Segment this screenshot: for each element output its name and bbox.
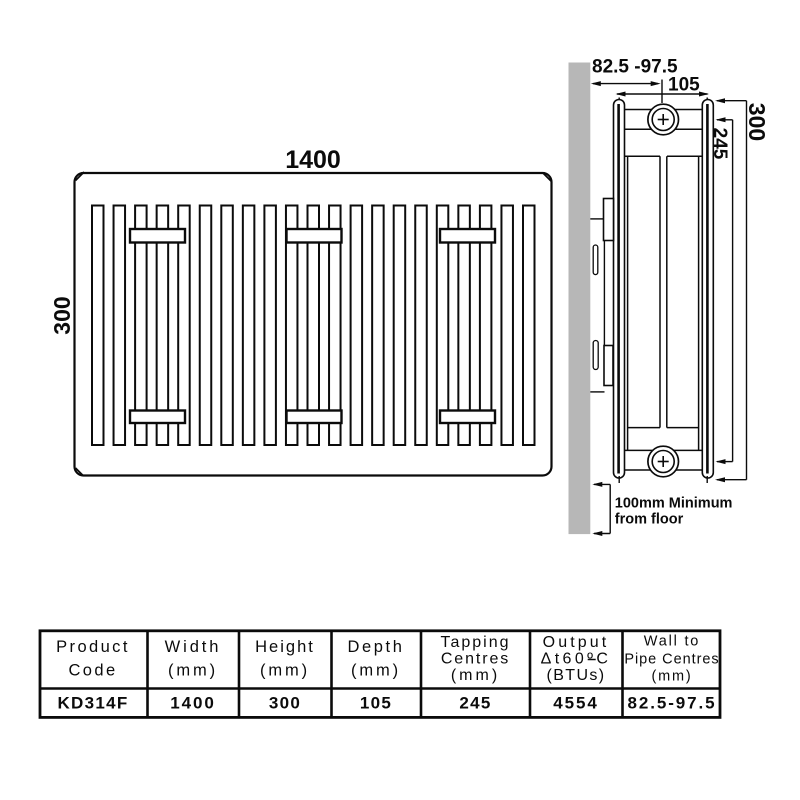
- svg-text:(mm): (mm): [651, 669, 692, 685]
- svg-text:105: 105: [360, 694, 392, 713]
- svg-text:Depth: Depth: [347, 638, 404, 656]
- svg-text:Pipe Centres: Pipe Centres: [624, 651, 719, 667]
- svg-text:(mm): (mm): [351, 661, 401, 679]
- svg-text:82.5 -97.5: 82.5 -97.5: [592, 57, 678, 78]
- svg-text:Width: Width: [165, 638, 222, 656]
- svg-text:82.5-97.5: 82.5-97.5: [628, 694, 717, 713]
- svg-text:(mm): (mm): [260, 661, 310, 679]
- svg-text:4554: 4554: [553, 694, 598, 713]
- svg-text:105: 105: [668, 75, 700, 96]
- svg-text:245: 245: [709, 128, 730, 160]
- svg-text:(mm): (mm): [451, 667, 500, 684]
- svg-text:Tapping: Tapping: [440, 634, 510, 651]
- svg-text:1400: 1400: [285, 146, 341, 174]
- svg-text:Height: Height: [255, 638, 315, 656]
- svg-text:Output: Output: [543, 634, 610, 651]
- svg-text:(mm): (mm): [168, 661, 218, 679]
- svg-text:245: 245: [459, 694, 491, 713]
- svg-text:from floor: from floor: [615, 512, 684, 528]
- svg-text:(BTUs): (BTUs): [546, 667, 605, 684]
- svg-text:300: 300: [49, 296, 75, 334]
- svg-text:1400: 1400: [170, 694, 215, 713]
- svg-text:300: 300: [269, 694, 301, 713]
- svg-text:KD314F: KD314F: [57, 694, 128, 713]
- svg-text:Product: Product: [56, 638, 130, 656]
- svg-text:Δt60ºC: Δt60ºC: [541, 650, 612, 667]
- svg-text:100mm Minimum: 100mm Minimum: [615, 496, 733, 512]
- svg-text:Centres: Centres: [441, 650, 510, 667]
- svg-text:Wall to: Wall to: [644, 634, 700, 650]
- svg-text:Code: Code: [68, 661, 117, 679]
- svg-text:300: 300: [744, 103, 770, 141]
